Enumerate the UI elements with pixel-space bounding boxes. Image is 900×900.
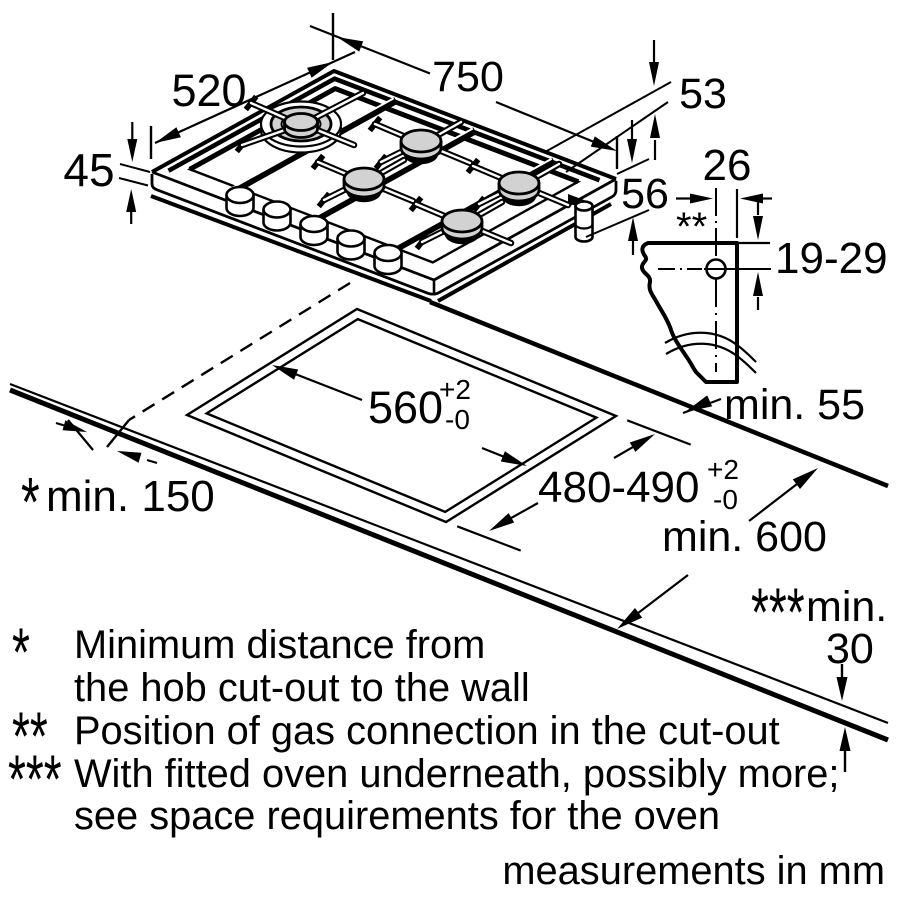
- svg-text:+2: +2: [707, 454, 739, 485]
- svg-text:+2: +2: [439, 374, 471, 405]
- svg-text:53: 53: [679, 70, 727, 118]
- svg-text:With fitted oven underneath, p: With fitted oven underneath, possibly mo…: [74, 752, 839, 796]
- svg-text:Minimum distance from: Minimum distance from: [74, 623, 485, 667]
- svg-text:min.: min.: [806, 583, 887, 631]
- svg-text:480-490: 480-490: [538, 463, 699, 512]
- svg-text:-0: -0: [713, 484, 738, 515]
- svg-text:750: 750: [432, 53, 504, 101]
- svg-text:*: *: [21, 463, 40, 541]
- svg-text:19-29: 19-29: [775, 234, 888, 283]
- svg-text:the hob cut-out to the wall: the hob cut-out to the wall: [74, 666, 530, 710]
- svg-text:min. 150: min. 150: [46, 472, 215, 521]
- svg-text:30: 30: [826, 625, 874, 673]
- svg-text:**: **: [676, 205, 707, 249]
- svg-text:520: 520: [171, 65, 246, 116]
- svg-text:see space requirements for the: see space requirements for the oven: [74, 794, 720, 838]
- svg-text:Position of gas connection in: Position of gas connection in the cut-ou…: [74, 709, 780, 753]
- svg-text:measurements in mm: measurements in mm: [502, 849, 885, 893]
- svg-text:45: 45: [63, 144, 114, 196]
- svg-text:***: ***: [8, 742, 62, 818]
- svg-text:*: *: [12, 615, 30, 691]
- svg-text:560: 560: [368, 382, 443, 433]
- svg-text:***: ***: [751, 575, 805, 651]
- svg-text:-0: -0: [445, 404, 470, 435]
- svg-text:min. 55: min. 55: [724, 381, 865, 429]
- svg-text:min. 600: min. 600: [662, 513, 827, 561]
- svg-text:56: 56: [621, 170, 669, 218]
- svg-text:26: 26: [703, 141, 752, 190]
